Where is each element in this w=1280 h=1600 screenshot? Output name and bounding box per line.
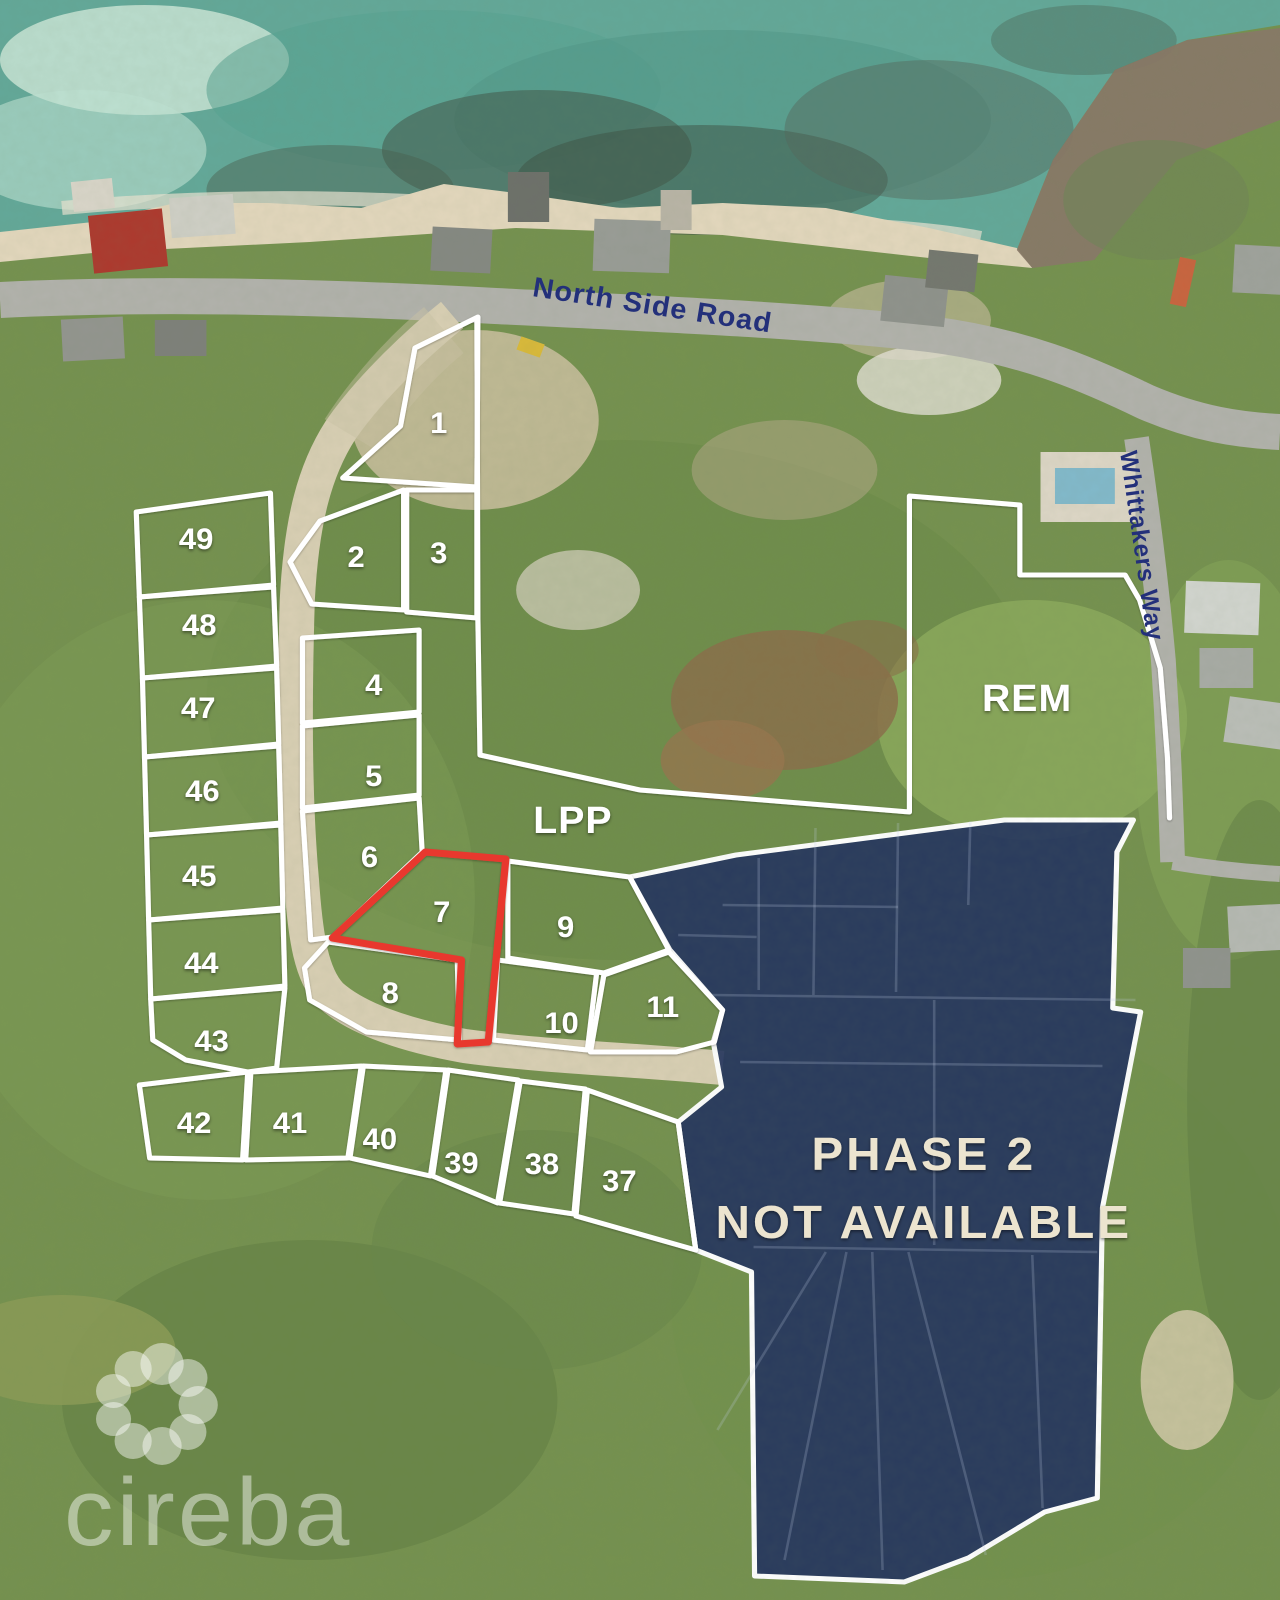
- lot-label-8: 8: [382, 976, 399, 1009]
- lot-label-39: 39: [444, 1146, 478, 1179]
- plat-map-svg: 1 2 3 4 5 6 7 8 9 10 11 37 38 39 40 41 4…: [0, 0, 1280, 1600]
- lot-label-4: 4: [365, 668, 382, 701]
- phase2-label-line2: NOT AVAILABLE: [716, 1197, 1132, 1248]
- lot-label-3: 3: [430, 536, 447, 569]
- lot-label-11: 11: [646, 990, 679, 1023]
- lot-label-47: 47: [181, 691, 215, 724]
- lot-label-41: 41: [273, 1106, 307, 1139]
- lot-label-1: 1: [430, 406, 447, 439]
- lot-label-6: 6: [361, 840, 378, 873]
- rem-label: REM: [982, 678, 1072, 720]
- lot-label-10: 10: [544, 1006, 578, 1039]
- lot-label-49: 49: [179, 522, 213, 555]
- phase2-label-line1: PHASE 2: [811, 1129, 1036, 1180]
- lot-label-37: 37: [602, 1164, 636, 1197]
- watermark-text: cireba: [64, 1458, 352, 1565]
- lot-label-42: 42: [177, 1106, 211, 1139]
- lot-label-38: 38: [525, 1147, 559, 1180]
- lot-label-46: 46: [185, 774, 219, 807]
- lot-label-43: 43: [194, 1024, 228, 1057]
- lot-label-5: 5: [365, 759, 382, 792]
- lot-label-44: 44: [184, 946, 218, 979]
- lot-label-48: 48: [182, 608, 216, 641]
- lot-label-45: 45: [182, 859, 216, 892]
- lot-label-40: 40: [363, 1122, 397, 1155]
- lot-label-9: 9: [557, 910, 574, 943]
- lot-label-2: 2: [348, 540, 365, 573]
- aerial-plat-map: 1 2 3 4 5 6 7 8 9 10 11 37 38 39 40 41 4…: [0, 0, 1280, 1600]
- lot-label-7: 7: [433, 895, 450, 928]
- lpp-label: LPP: [533, 800, 612, 842]
